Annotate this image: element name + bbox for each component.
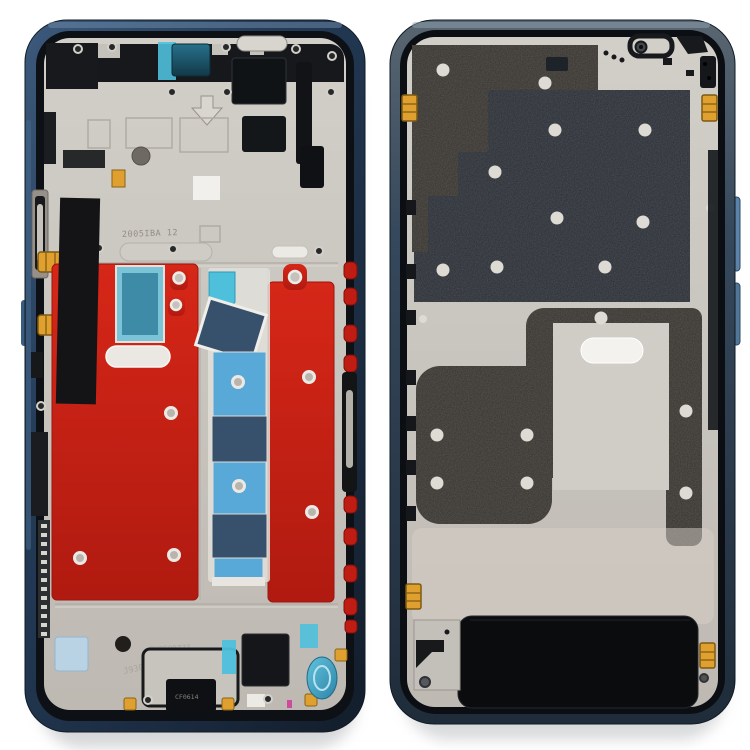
fingerprint-window	[581, 338, 643, 363]
product-photo-canvas: 2005IBA 12	[0, 0, 750, 750]
bone-bracket	[272, 246, 308, 258]
mic-hole	[115, 636, 131, 652]
connector-code-label: CF0614	[175, 693, 199, 701]
frame-top-sheen	[48, 22, 342, 28]
left-foam-patch	[63, 150, 105, 168]
pink-marker	[287, 700, 292, 708]
mic-grommet	[132, 147, 150, 165]
left-edge-block	[44, 112, 56, 164]
front-housing-view: 2005IBA 12	[21, 20, 365, 732]
pale-blue-pad	[55, 637, 88, 671]
graphite-strip	[56, 198, 100, 405]
teal-tape-square	[116, 266, 164, 342]
speaker-box	[242, 634, 289, 686]
cyan-tape-strip	[222, 640, 236, 674]
shield-component	[546, 57, 568, 71]
bottom-speaker-pad	[458, 616, 698, 708]
back-housing-view	[390, 20, 740, 724]
product-photo: 2005IBA 12	[0, 0, 750, 750]
red-adhesive-right	[268, 282, 334, 602]
fingerprint-plate	[553, 323, 669, 490]
speaker-mesh-bracket	[237, 36, 287, 51]
gold-contact	[112, 170, 125, 187]
white-sticker	[193, 176, 220, 200]
adhesive-pill-cutout	[106, 346, 170, 367]
rear-bottom-zone	[414, 616, 708, 708]
side-bracket	[31, 432, 48, 516]
front-camera-window	[172, 44, 210, 76]
frame-left-sheen	[26, 120, 31, 550]
plate-code-stamp: 2005IBA 12	[122, 228, 179, 240]
